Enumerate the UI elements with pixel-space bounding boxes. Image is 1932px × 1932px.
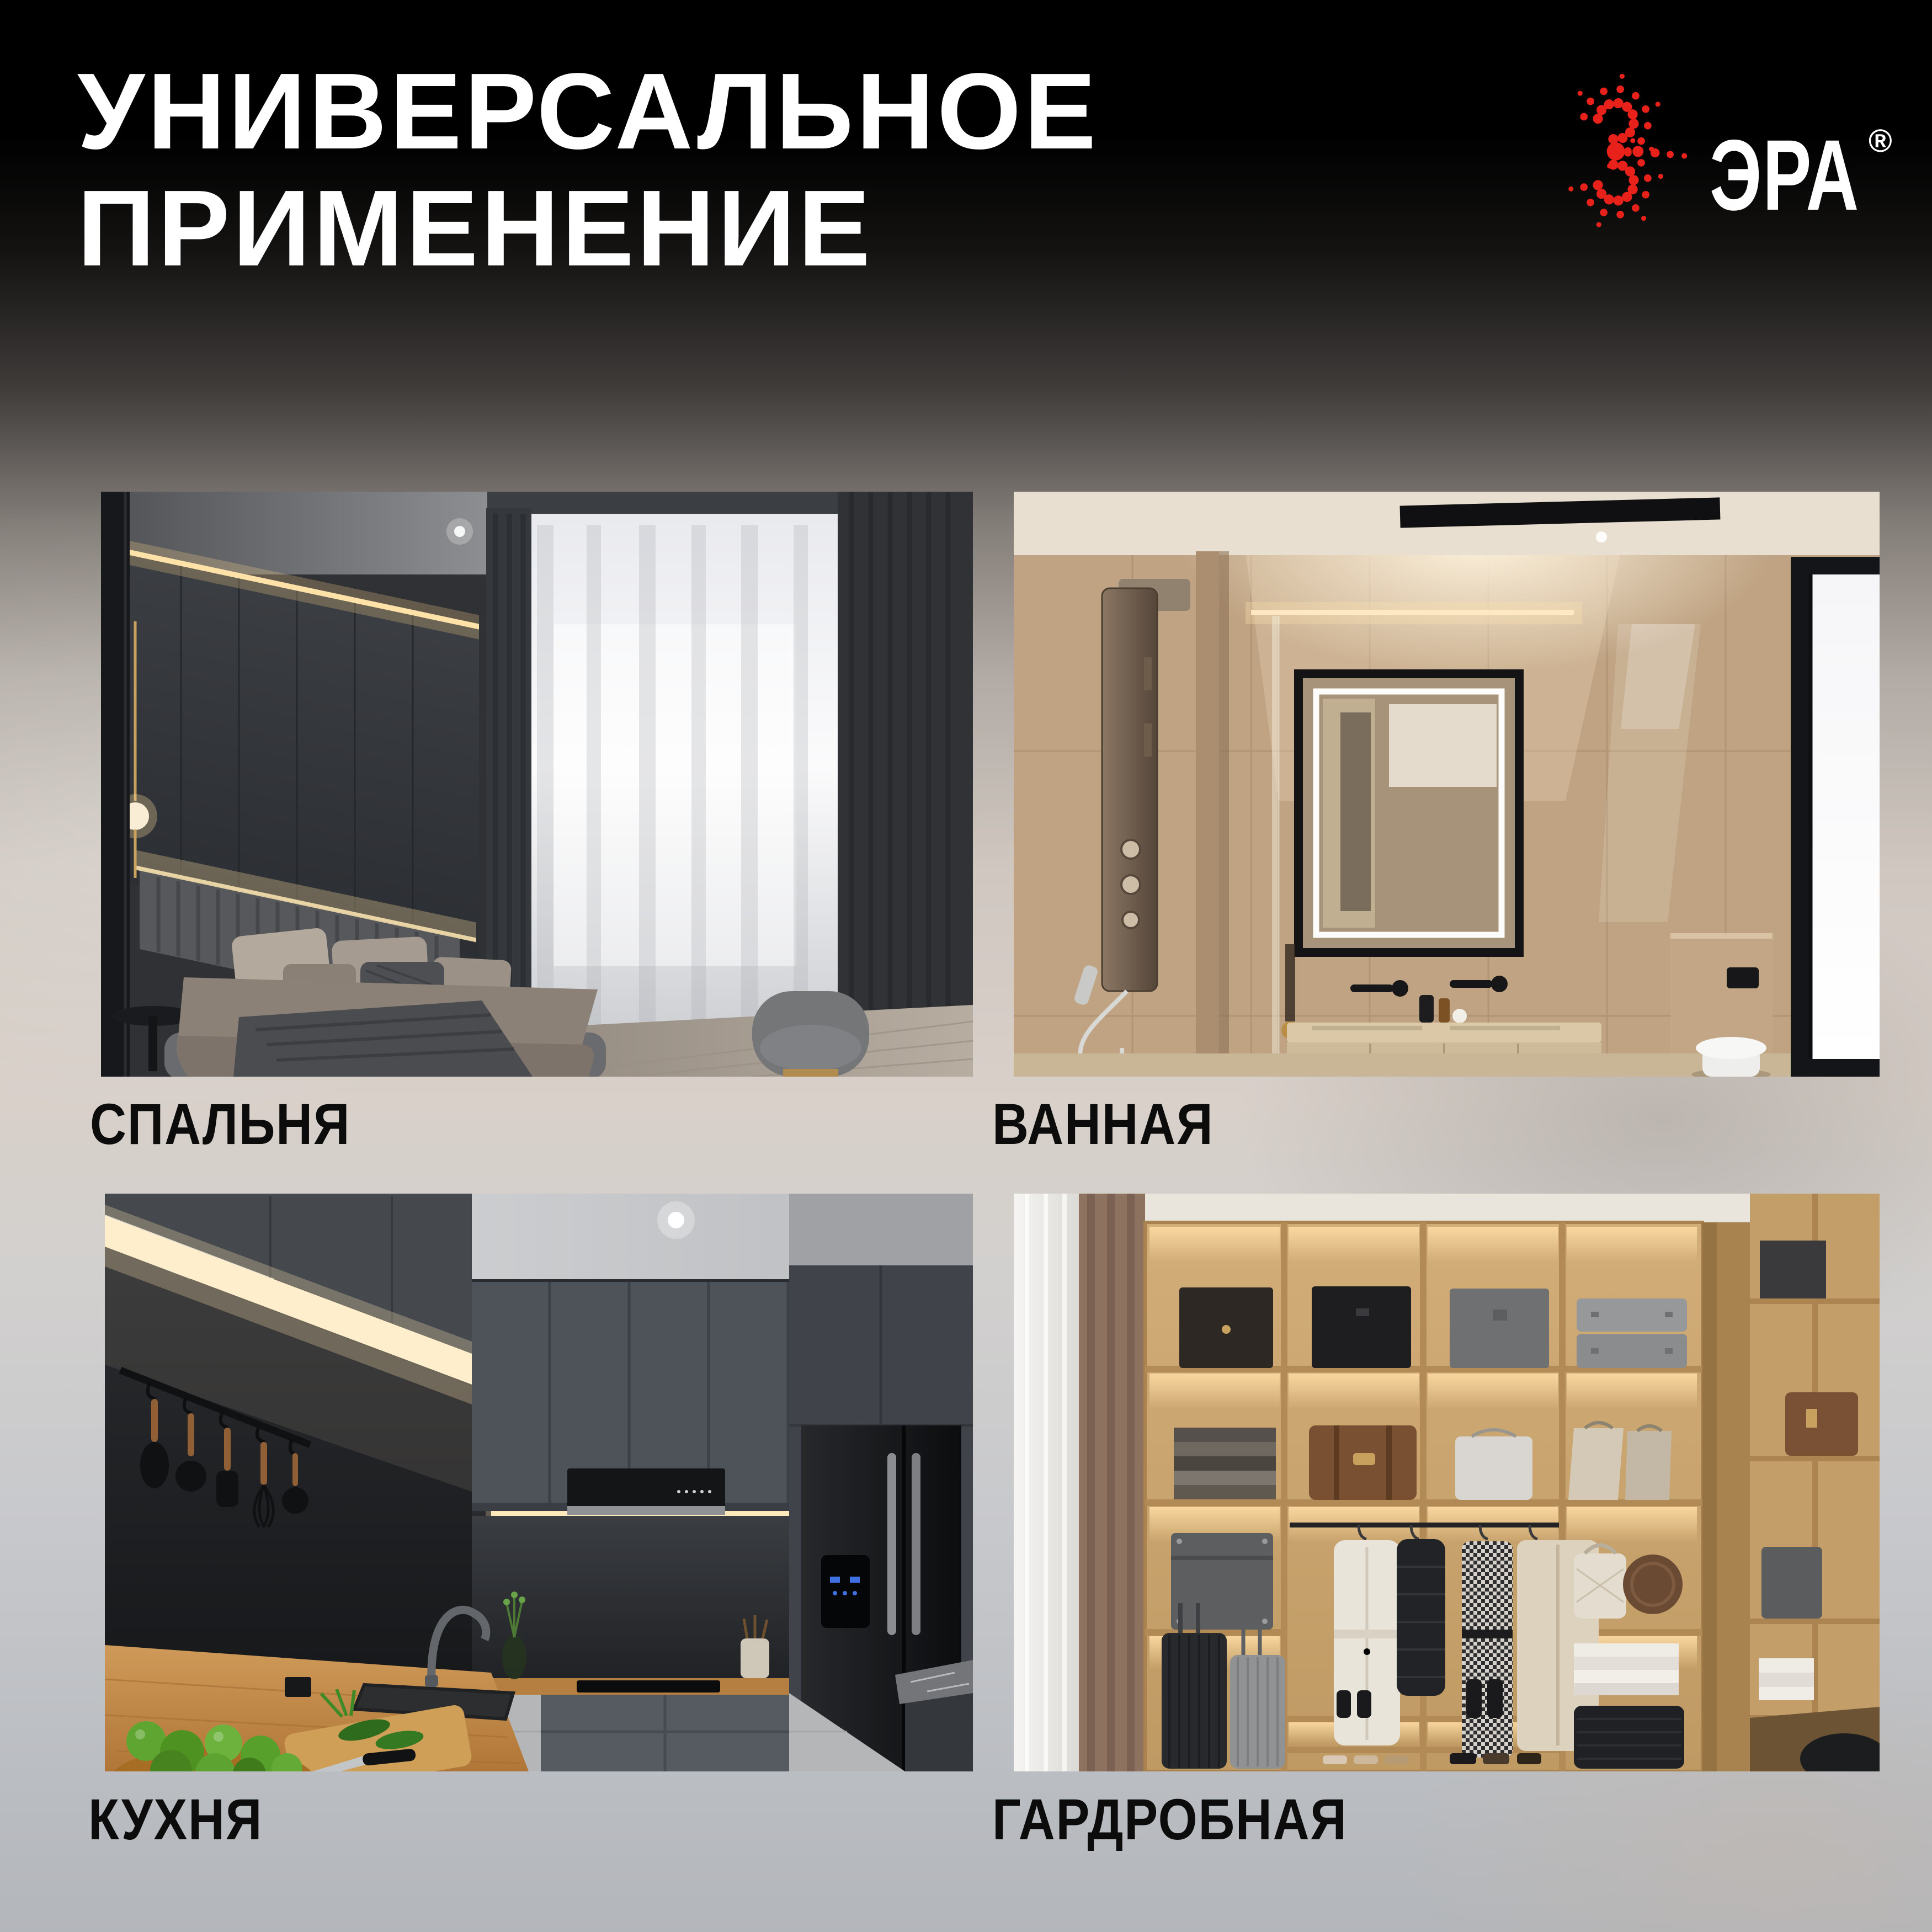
mirror (1298, 674, 1519, 952)
page-title: УНИВЕРСАЛЬНОЕ ПРИМЕНЕНИЕ (77, 53, 1099, 287)
armchair (752, 991, 869, 1077)
bathroom-photo (1014, 492, 1880, 1077)
flush-plate (1727, 967, 1759, 988)
puffer-jacket (1397, 1539, 1445, 1696)
wardrobe-photo (1014, 1194, 1880, 1771)
bedroom-label: СПАЛЬНЯ (90, 1092, 350, 1158)
bathroom-label: ВАННАЯ (992, 1092, 1214, 1158)
kitchen-illustration (105, 1194, 973, 1771)
kitchen-label: КУХНЯ (88, 1787, 263, 1853)
folded-knits (1174, 1428, 1276, 1499)
bedroom-illustration (101, 492, 973, 1077)
large-suitcase (1574, 1706, 1684, 1769)
page-title-line2: ПРИМЕНЕНИЕ (77, 170, 1099, 287)
page-title-line1: УНИВЕРСАЛЬНОЕ (77, 53, 1099, 170)
wardrobe-label: ГАРДРОБНАЯ (992, 1787, 1348, 1853)
houndstooth-coat (1462, 1541, 1513, 1758)
kitchen-photo (105, 1194, 973, 1771)
era-logo: ЭРА ® (1545, 71, 1931, 253)
folded-whites (1574, 1643, 1679, 1695)
trunk (1171, 1533, 1273, 1630)
hanging-rod (1290, 1523, 1559, 1527)
window (1791, 557, 1880, 1077)
toilet (1691, 1037, 1771, 1077)
era-logo-text: ЭРА (1710, 117, 1860, 233)
era-logo-dots (1550, 73, 1694, 234)
bedroom-photo (101, 492, 973, 1077)
side-unit (1750, 1194, 1880, 1771)
induction-hob (577, 1680, 720, 1693)
leather-suitcase (1309, 1425, 1417, 1500)
wardrobe-illustration (1014, 1194, 1880, 1771)
island (895, 1660, 973, 1771)
registered-mark-icon: ® (1869, 123, 1892, 159)
bathroom-illustration (1014, 492, 1880, 1077)
range-hood (567, 1468, 725, 1515)
